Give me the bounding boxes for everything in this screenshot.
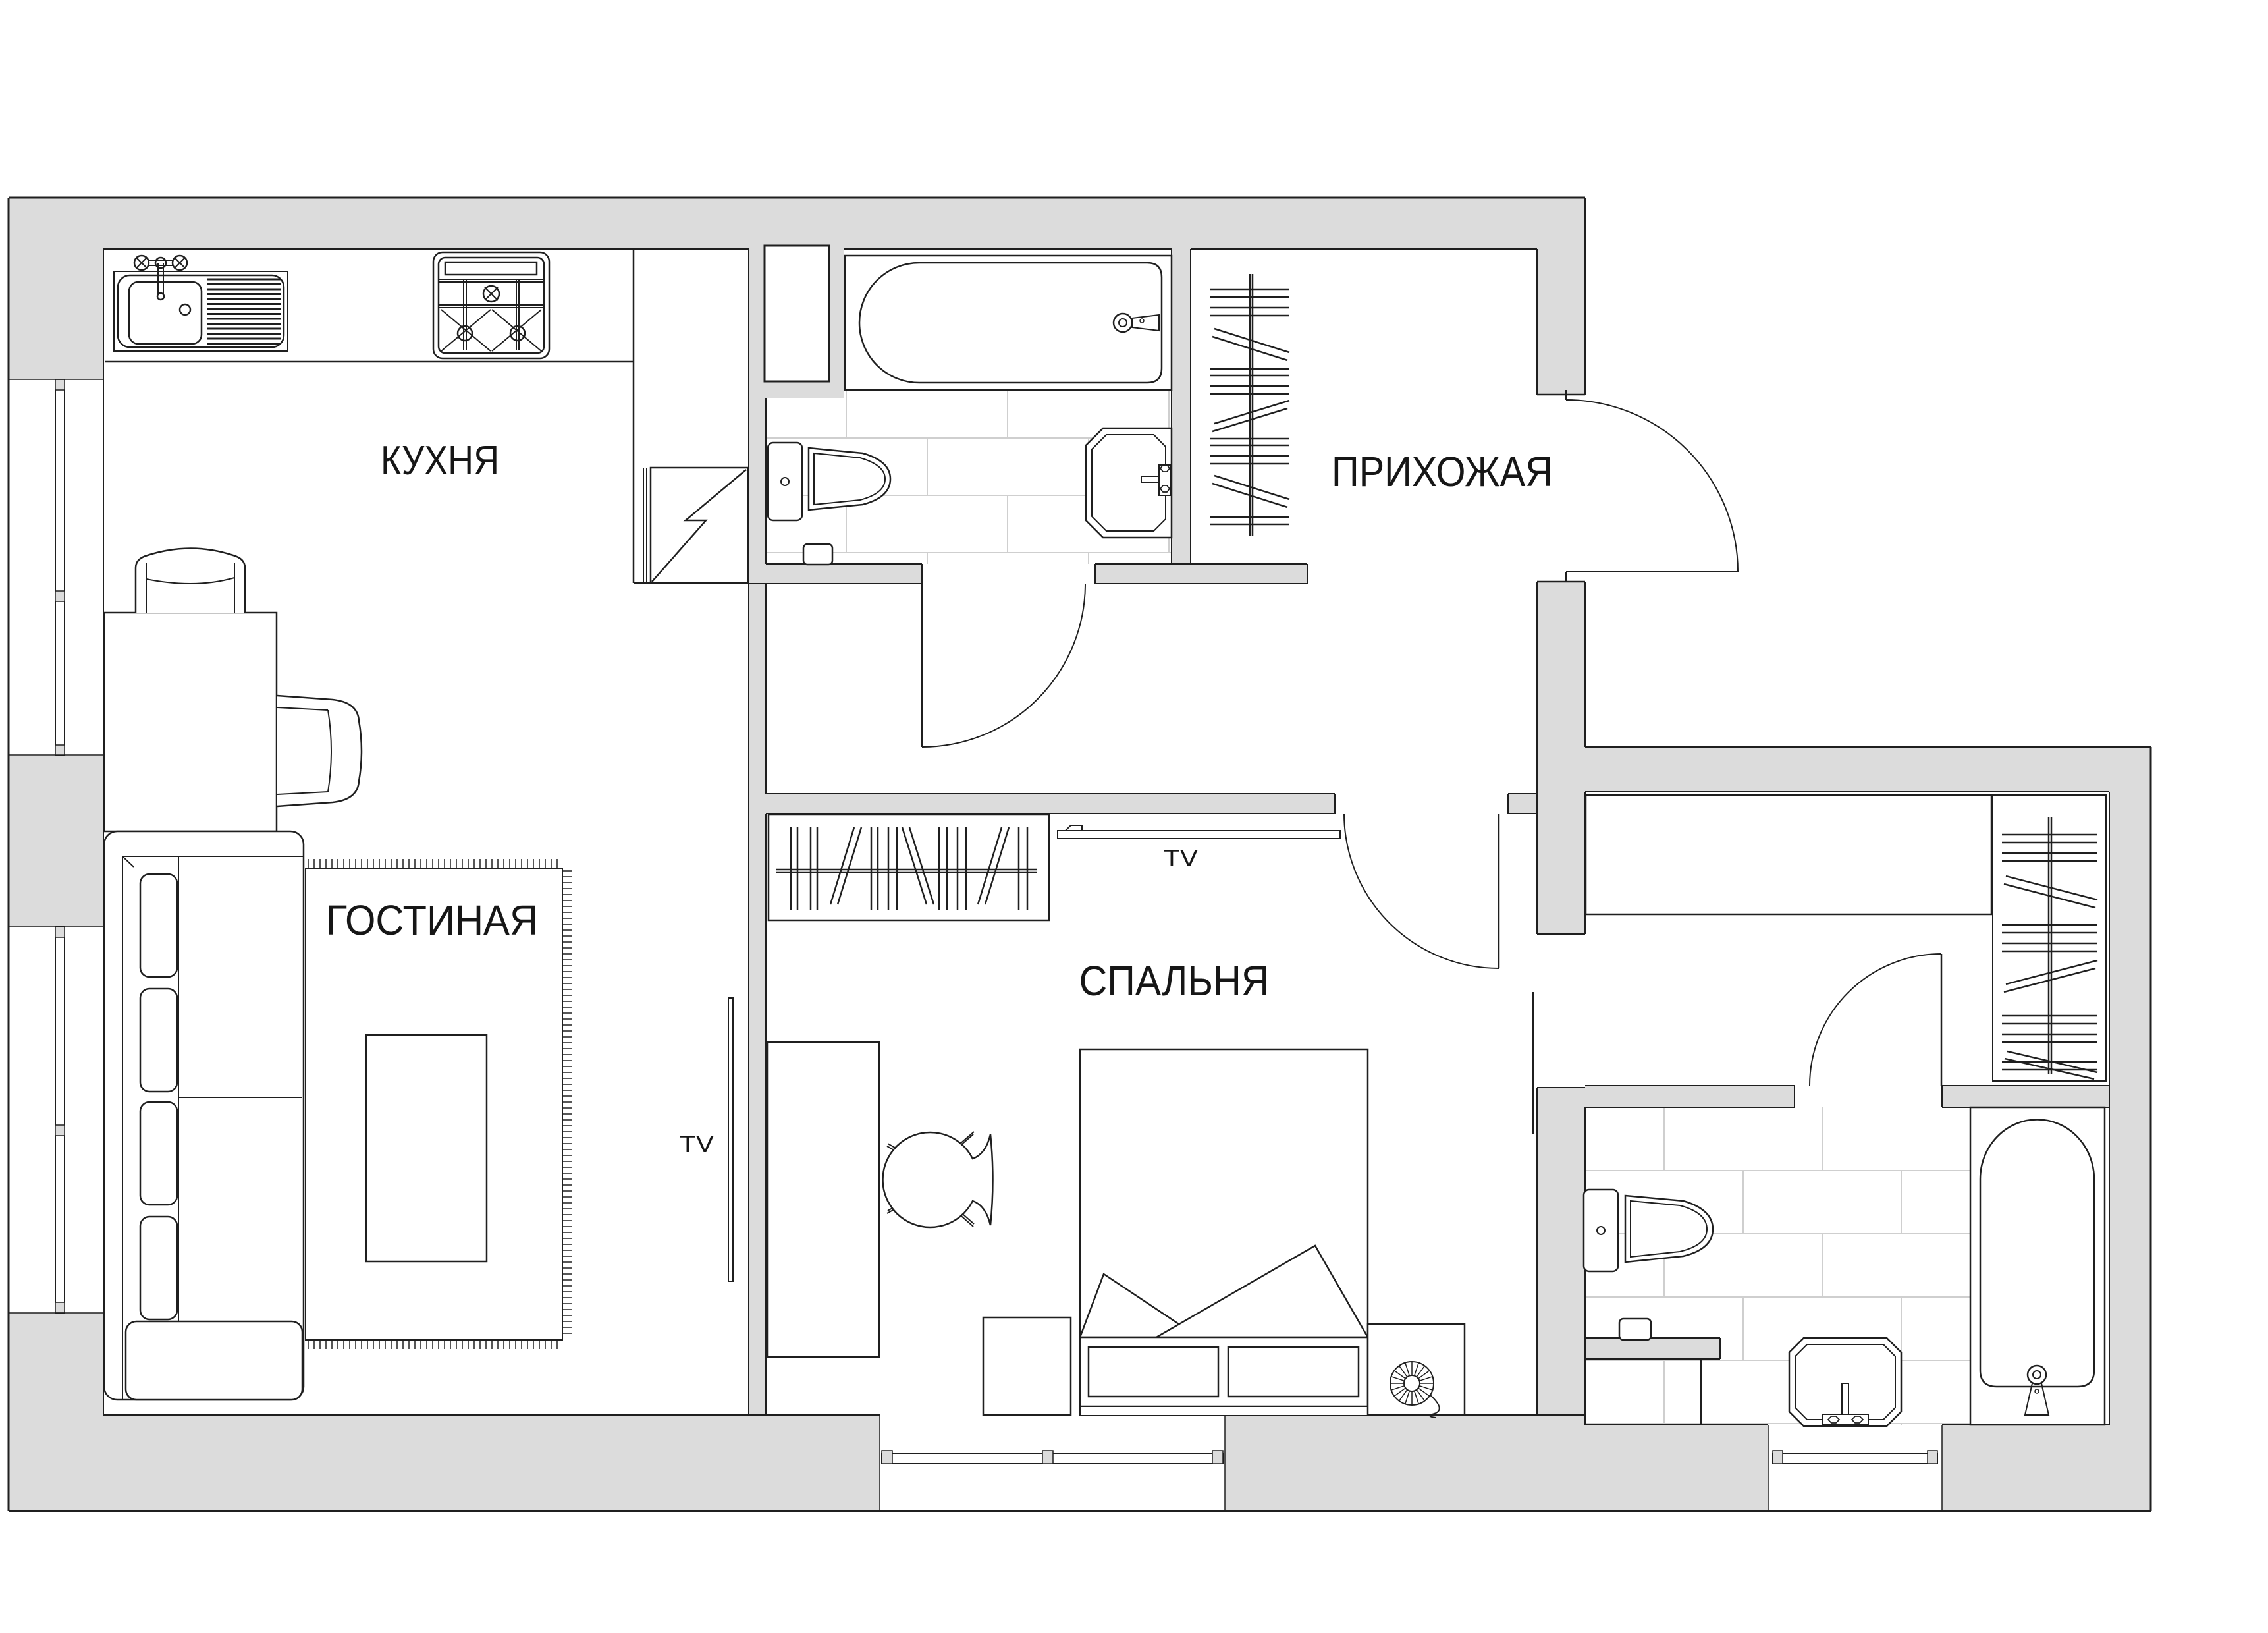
svg-text:ГОСТИНАЯ: ГОСТИНАЯ [326,897,538,944]
svg-text:TV: TV [680,1130,714,1157]
svg-text:КУХНЯ: КУХНЯ [381,438,499,484]
svg-text:TV: TV [1164,844,1198,872]
svg-text:СПАЛЬНЯ: СПАЛЬНЯ [1079,957,1270,1005]
svg-text:ПРИХОЖАЯ: ПРИХОЖАЯ [1332,448,1553,495]
